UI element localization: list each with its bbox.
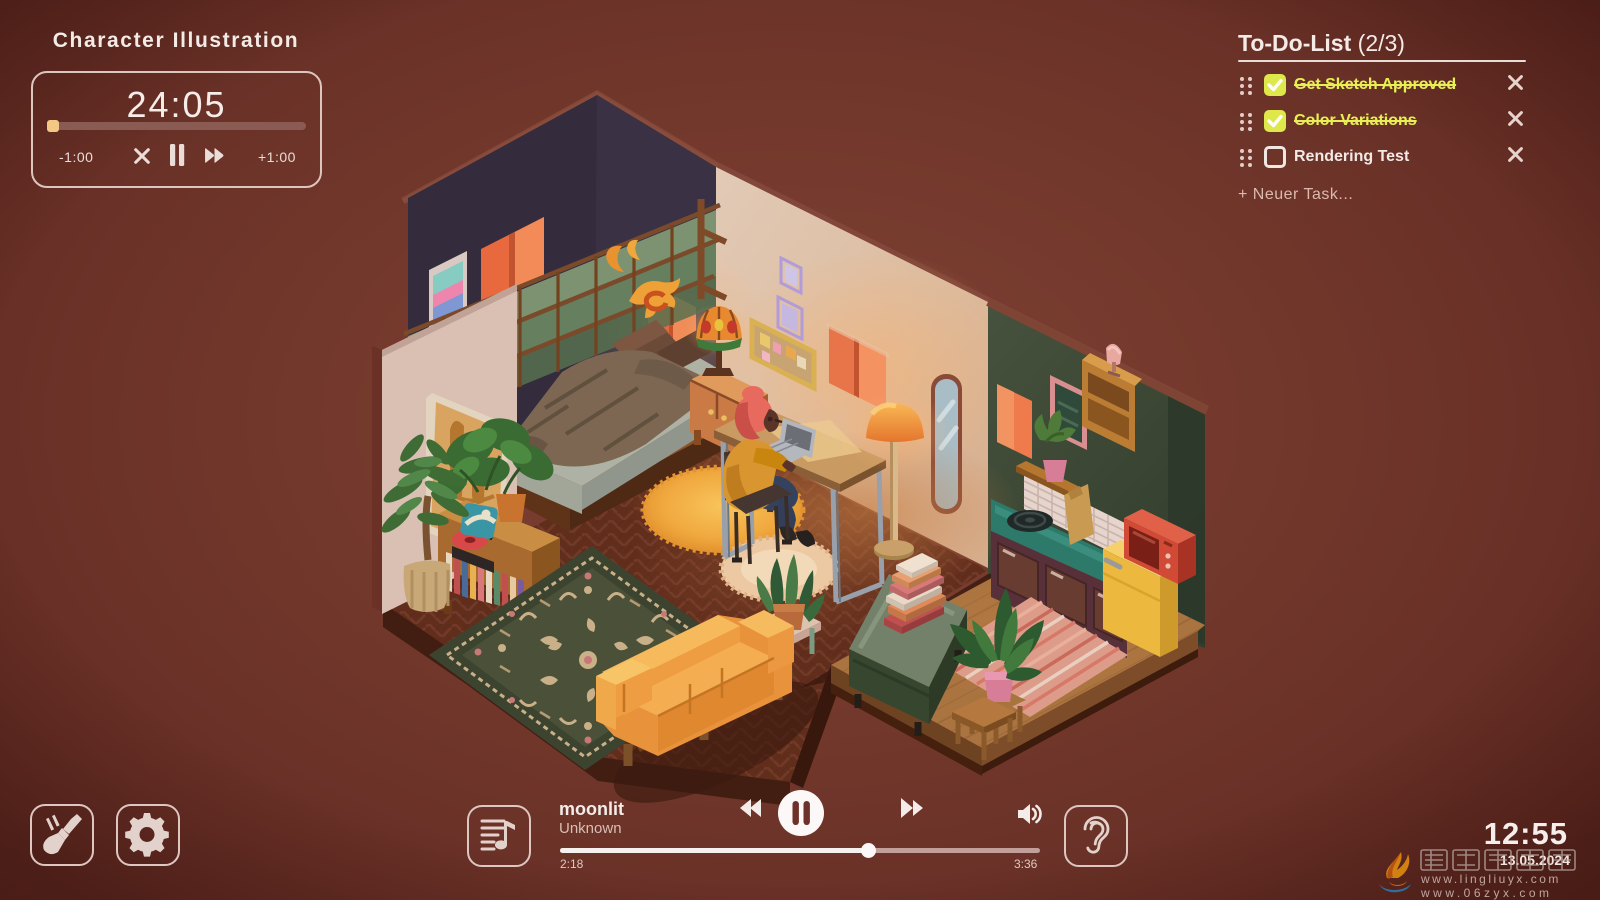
svg-text:www.lingliuyx.com: www.lingliuyx.com xyxy=(1420,872,1561,886)
svg-text:www.06zyx.com: www.06zyx.com xyxy=(1420,886,1553,900)
